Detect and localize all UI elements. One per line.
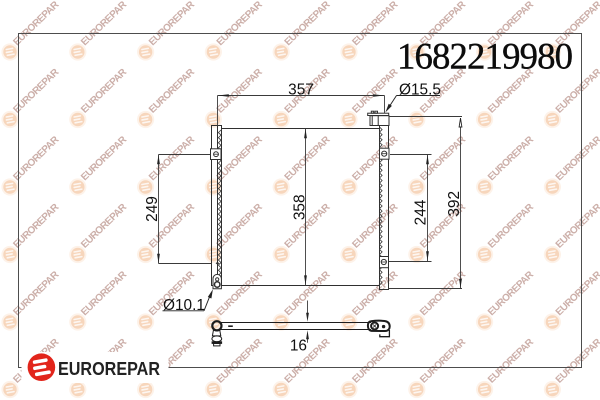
svg-text:358: 358 [291, 194, 308, 220]
svg-text:249: 249 [144, 196, 161, 222]
svg-text:16: 16 [290, 338, 307, 355]
svg-text:1682219980: 1682219980 [397, 36, 573, 77]
svg-text:244: 244 [412, 199, 429, 225]
svg-text:Ø15.5: Ø15.5 [399, 82, 441, 99]
svg-text:EUROREPAR: EUROREPAR [58, 359, 160, 379]
svg-text:357: 357 [288, 81, 314, 98]
svg-text:392: 392 [446, 191, 463, 217]
